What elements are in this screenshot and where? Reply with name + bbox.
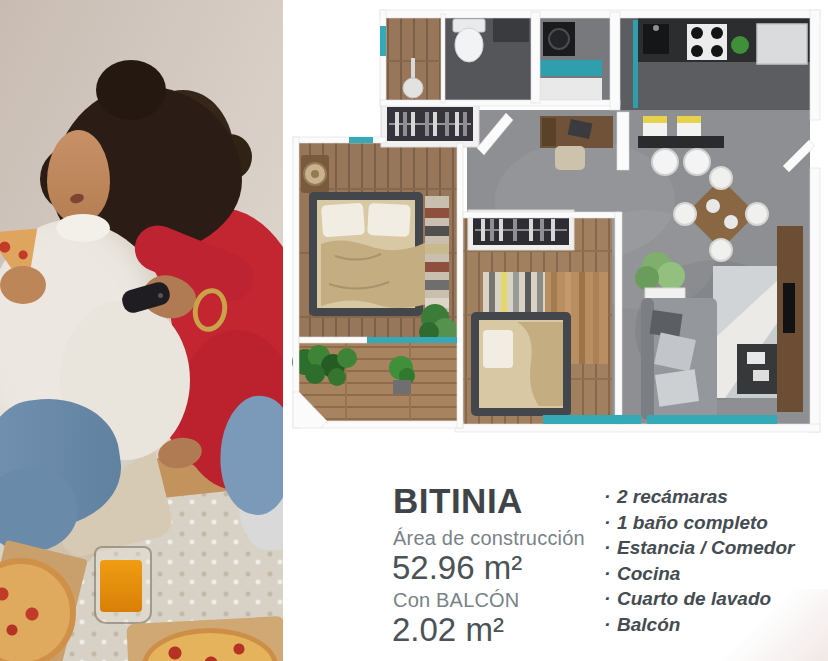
bar-counter xyxy=(638,136,724,148)
laundry-accent xyxy=(540,60,602,76)
sofa xyxy=(641,298,717,420)
feature-text: Cocina xyxy=(617,563,680,584)
bullet: · xyxy=(604,612,617,638)
balcony-sliding-door xyxy=(367,337,457,343)
stove xyxy=(687,24,727,60)
nightstand xyxy=(301,155,329,193)
feature-text: Balcón xyxy=(617,614,680,635)
balcony-value: 2.02 m² xyxy=(392,611,504,649)
area-value: 52.96 m² xyxy=(392,549,522,587)
balcony-label: Con BALCÓN xyxy=(393,589,520,612)
bed-1 xyxy=(309,192,427,316)
feature-item: ·Cocina xyxy=(604,561,794,587)
corner-glow xyxy=(698,589,828,661)
floorplan-image xyxy=(285,0,828,470)
fridge xyxy=(757,24,807,64)
kitchen-plant xyxy=(731,36,749,54)
bullet: · xyxy=(604,586,617,612)
bed-2 xyxy=(471,312,571,416)
unit-name: BITINIA xyxy=(393,481,523,521)
kitchen-sink xyxy=(643,24,669,54)
feature-item: ·Estancia / Comedor xyxy=(604,535,794,561)
desk xyxy=(540,116,613,148)
toilet xyxy=(453,19,485,62)
woman1-face xyxy=(47,130,110,224)
floorplan-svg xyxy=(285,0,828,470)
feature-text: 2 recámaras xyxy=(617,486,728,507)
desk-chair xyxy=(555,146,585,170)
tv-console xyxy=(777,226,803,412)
brochure-page: BITINIA Área de construcción 52.96 m² Co… xyxy=(0,0,828,661)
bullet: · xyxy=(604,561,617,587)
washing-machine xyxy=(543,22,575,56)
bath-vanity xyxy=(493,18,529,42)
bullet: · xyxy=(604,510,617,536)
feature-text: Estancia / Comedor xyxy=(617,537,794,558)
feature-item: ·2 recámaras xyxy=(604,484,794,510)
hall-closet xyxy=(381,101,479,147)
bullet: · xyxy=(604,484,617,510)
laundry-counter xyxy=(540,78,602,102)
woman1-hand xyxy=(0,266,46,304)
area-label: Área de construcción xyxy=(393,527,585,550)
feature-text: 1 baño completo xyxy=(617,512,768,533)
bullet: · xyxy=(604,535,617,561)
kitchen-accent xyxy=(633,20,638,108)
feature-item: ·1 baño completo xyxy=(604,510,794,536)
bedside-runner-rug xyxy=(425,196,449,312)
lifestyle-photo xyxy=(0,0,283,661)
